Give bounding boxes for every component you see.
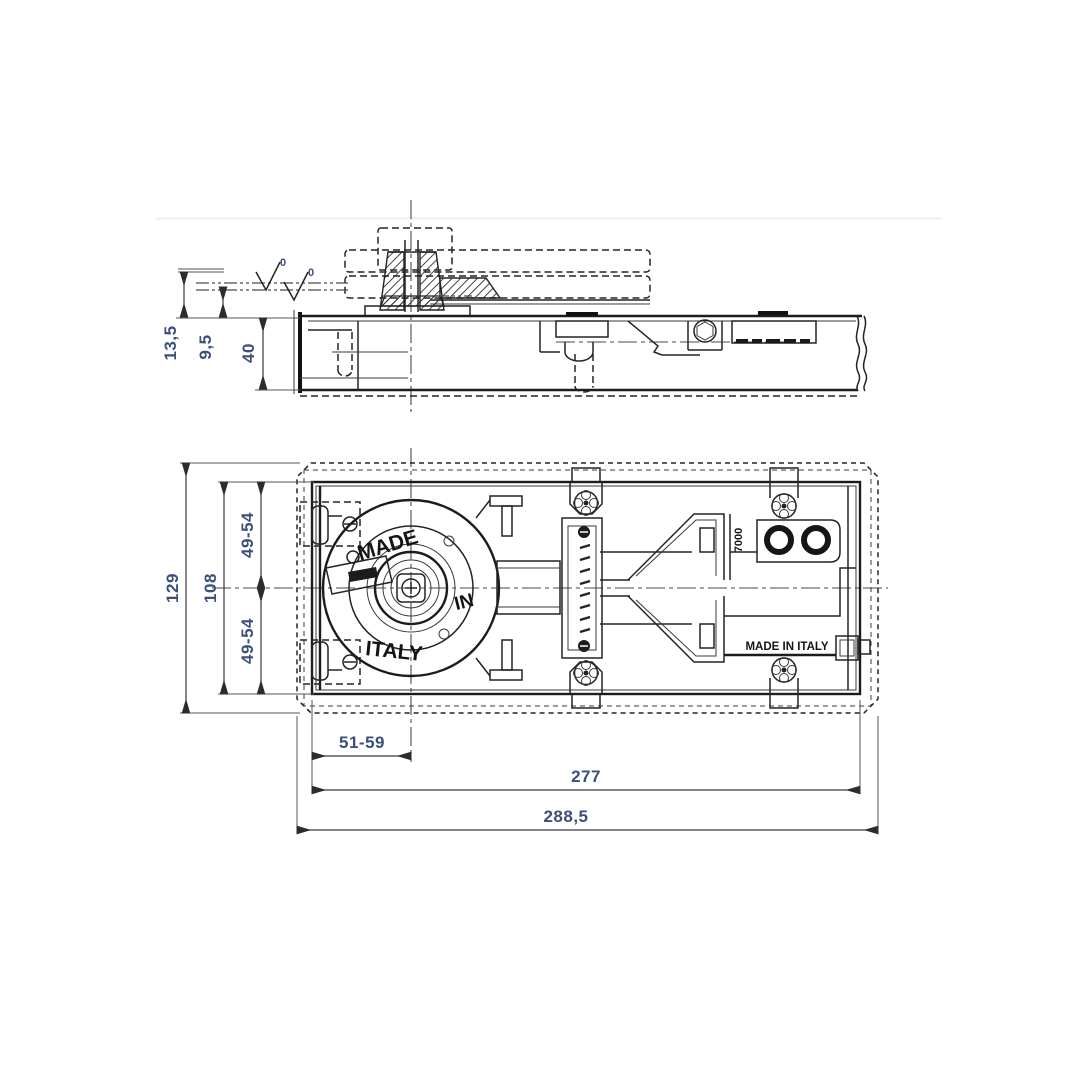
technical-drawing-canvas: 0 0: [0, 0, 1080, 1080]
level-zero-left: 0: [280, 257, 286, 269]
level-check-icon: [256, 262, 280, 290]
side-view-dimensions: 13,5 9,5 40: [161, 269, 300, 390]
level-check-icon: [284, 272, 308, 300]
dim-9-5: 9,5: [196, 334, 215, 359]
label-block: [732, 313, 816, 343]
dim-51-59: 51-59: [339, 733, 385, 752]
label-italy: ITALY: [364, 637, 423, 666]
body-section: [294, 310, 867, 396]
threshold-wedge: [440, 278, 500, 298]
dim-49-54-bottom: 49-54: [238, 618, 257, 664]
dim-49-54-top: 49-54: [238, 512, 257, 558]
lobed-screw: [770, 482, 798, 519]
dim-13-5: 13,5: [161, 325, 180, 360]
dim-288-5: 288,5: [543, 807, 588, 826]
anchor-plate-bottom: [300, 640, 360, 684]
plan-view: MADE IN ITALY: [163, 448, 888, 834]
dim-40: 40: [239, 343, 258, 363]
label-origin: MADE IN ITALY: [745, 641, 828, 653]
spindle-section: [365, 240, 500, 316]
label-model: 7000: [733, 528, 745, 552]
floor-spring-drawing: 0 0: [0, 0, 1080, 1080]
anchor-screw-hidden: [338, 332, 352, 376]
dim-129: 129: [163, 573, 182, 603]
adjustment-valves: 7000: [733, 520, 840, 562]
scan-edge: [156, 217, 942, 220]
spring-mechanism: MADE IN ITALY: [323, 500, 499, 676]
plan-dimensions-bottom: 51-59 277 288,5: [297, 700, 878, 834]
hex-screw: [688, 320, 722, 350]
dim-108: 108: [201, 573, 220, 603]
dim-277: 277: [571, 767, 601, 786]
side-view: 0 0: [161, 200, 867, 412]
level-zero-right: 0: [308, 267, 314, 279]
lobed-screw: [770, 658, 798, 695]
